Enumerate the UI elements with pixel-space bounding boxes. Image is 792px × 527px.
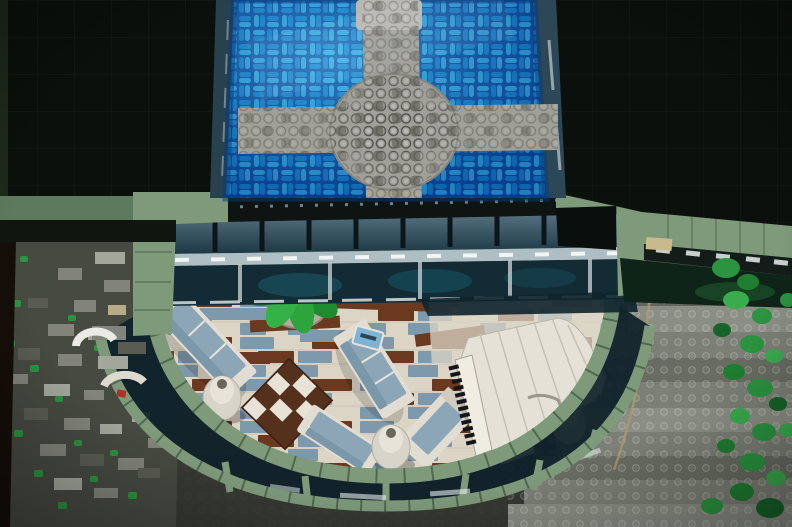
photo-vignette <box>0 0 792 527</box>
lego-photo: Top-down photograph of a LEGO model: roo… <box>0 0 792 527</box>
scene-svg <box>0 0 792 527</box>
